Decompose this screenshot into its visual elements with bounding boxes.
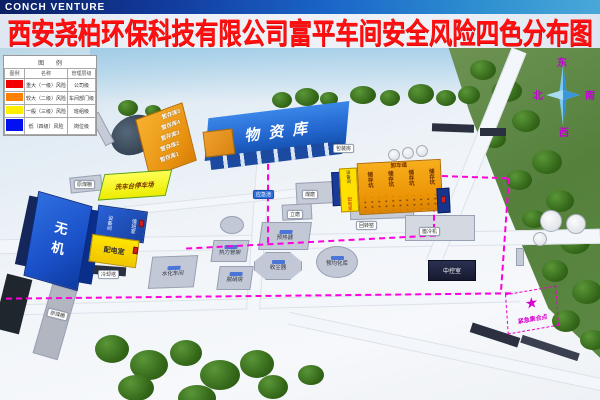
- legend-level: 车间部门级: [68, 92, 96, 105]
- tree: [272, 92, 292, 108]
- coal-mill-label: 煤磨: [302, 190, 318, 199]
- assembly-point-label: 紧急集合点: [517, 311, 547, 325]
- title-band: 西安尧柏环保科技有限公司富平车间安全风险四色分布图: [0, 14, 600, 48]
- prehomogenization-silo-label: 预均化库: [326, 261, 348, 267]
- pit-equipment-room-label: 设备间: [346, 170, 351, 184]
- compass-west-label: 西: [559, 124, 569, 139]
- thermal-pipe-rack-label: 热力管架: [218, 250, 241, 256]
- equipment-room-label: 设备间: [106, 215, 113, 231]
- legend-name: 重大（一级）风险: [25, 79, 68, 92]
- tree: [170, 340, 202, 366]
- dust-collector: 收尘器: [254, 252, 302, 280]
- carwash-parking: 洗车台停车场: [98, 169, 172, 200]
- legend-row-larger: 较大（二级）风险 车间部门级: [5, 92, 96, 105]
- materials-warehouse-annex: [203, 128, 236, 157]
- preheater-label: 预热器: [276, 235, 293, 241]
- legend-header-swatch: 图例: [5, 69, 25, 79]
- grate-cooler-label: 篦冷机: [419, 227, 440, 236]
- small-structure: [480, 128, 506, 136]
- prehomogenization-silo: 预均化库: [316, 246, 358, 278]
- legend-title: 图 例: [4, 56, 96, 68]
- coal-shed-lower: [33, 284, 78, 360]
- legend-header-name: 名称: [25, 69, 68, 79]
- cooling-tower-label: 冷却塔: [98, 270, 119, 279]
- red-door: [441, 196, 446, 203]
- temp-storage-building: 暂存库5 暂存库4 暂存库3 暂存库2 暂存库1: [135, 102, 197, 177]
- tree: [240, 350, 274, 378]
- red-door: [139, 220, 145, 228]
- materials-warehouse-label: 物资库: [236, 115, 318, 146]
- red-door: [133, 247, 139, 255]
- coal-shed-upper-label: 原煤棚: [74, 180, 95, 189]
- tree: [580, 330, 600, 350]
- tree: [295, 88, 319, 106]
- red-swatch: [6, 80, 23, 88]
- tree: [532, 150, 562, 174]
- tree: [470, 60, 496, 80]
- compass-star-icon: [546, 64, 580, 126]
- power-distribution-label: 配电室: [103, 245, 125, 258]
- legend-name: 低（四级）风险: [25, 118, 68, 135]
- carwash-parking-label: 洗车台停车场: [114, 179, 155, 192]
- tree: [298, 365, 324, 385]
- storage-pit-label: 储存坑: [407, 169, 414, 195]
- facility-map: 暂存库5 暂存库4 暂存库3 暂存库2 暂存库1 物资库 包装房 洗车台停车场 …: [0, 48, 600, 400]
- legend-row-major: 重大（一级）风险 公司级: [5, 79, 96, 92]
- orange-swatch: [6, 93, 23, 101]
- tree: [542, 260, 568, 282]
- id-tag: [272, 260, 285, 264]
- silo-tank: [533, 232, 547, 246]
- packing-room-label: 包装房: [333, 144, 354, 153]
- tree: [118, 375, 154, 400]
- legend-row-general: 一般（三级）风险 班组级: [5, 105, 96, 118]
- small-structure: [432, 123, 474, 132]
- tree: [546, 190, 574, 212]
- denitration-room: 脱硝房: [216, 266, 253, 290]
- storage-pit-label: 储存坑: [386, 170, 393, 196]
- hydration-workshop: 水化车间: [148, 255, 198, 289]
- risk-legend: 图 例 图例 名称 管理层级 重大（一级）风险 公司级 较大（二级）风险 车间部…: [3, 55, 97, 136]
- tree: [408, 84, 434, 104]
- tree: [572, 280, 600, 304]
- storage-tank: [402, 147, 414, 159]
- small-structure: [516, 248, 524, 266]
- compass-south-label: 南: [585, 87, 595, 102]
- legend-name: 较大（二级）风险: [25, 92, 68, 105]
- page-title: 西安尧柏环保科技有限公司富平车间安全风险四色分布图: [8, 10, 593, 51]
- tree: [458, 86, 480, 104]
- yellow-swatch: [6, 106, 23, 114]
- small-silo: [220, 216, 244, 234]
- id-tag: [331, 256, 344, 260]
- tree: [258, 375, 288, 399]
- tree: [436, 90, 456, 106]
- legend-header-level: 管理层级: [68, 69, 96, 79]
- emergency-assembly-point: ★ 紧急集合点: [505, 285, 559, 334]
- silo-tank: [566, 214, 586, 234]
- legend-header-row: 图例 名称 管理层级: [5, 69, 96, 79]
- assembly-star-icon: ★: [524, 296, 538, 312]
- legend-row-low: 低（四级）风险 岗位级: [5, 118, 96, 135]
- id-tag: [279, 230, 293, 234]
- id-tag: [229, 272, 243, 276]
- tree: [200, 360, 240, 390]
- duty-room-label: 值班室: [129, 218, 136, 234]
- legend-level: 岗位级: [68, 118, 96, 135]
- storage-tank: [388, 149, 400, 161]
- tree: [95, 335, 129, 363]
- inorganic-workshop-label: 无机: [45, 219, 70, 264]
- legend-level: 班组级: [68, 105, 96, 118]
- denitration-room-label: 脱硝房: [226, 277, 243, 283]
- compass-rose: 东 北 南 西: [533, 54, 597, 138]
- pit-power-room-label: 配电室: [347, 196, 352, 210]
- emergency-pool-label: 应急池: [253, 190, 274, 199]
- compass-north-label: 北: [533, 87, 543, 102]
- rotary-kiln-label: 回转窑: [356, 221, 377, 230]
- legend-name: 一般（三级）风险: [25, 105, 68, 118]
- storage-pit-building: 卸车道 储存坑 储存坑 储存坑 储存坑: [357, 159, 444, 215]
- tree: [506, 170, 532, 190]
- tree: [380, 90, 400, 106]
- central-control-room: 中控室: [428, 260, 476, 281]
- hydration-workshop-label: 水化车间: [161, 271, 184, 278]
- storage-pit-label: 储存坑: [366, 171, 373, 197]
- tree: [350, 86, 376, 104]
- central-control-room-label: 中控室: [443, 266, 461, 275]
- small-structure: [520, 335, 580, 361]
- vertical-mill-label: 立磨: [287, 210, 303, 219]
- plant-map-page: CONCH VENTURE 西安尧柏环保科技有限公司富平车间安全风险四色分布图: [0, 0, 600, 400]
- blue-swatch: [6, 119, 23, 131]
- storage-pit-label: 储存坑: [427, 168, 434, 194]
- silo-tank: [540, 210, 562, 232]
- storage-tank: [416, 145, 428, 157]
- legend-level: 公司级: [68, 79, 96, 92]
- dust-collector-label: 收尘器: [270, 265, 287, 271]
- storage-pit-annex: 设备间 配电室: [339, 168, 359, 213]
- thermal-pipe-rack: 热力管架: [210, 240, 249, 262]
